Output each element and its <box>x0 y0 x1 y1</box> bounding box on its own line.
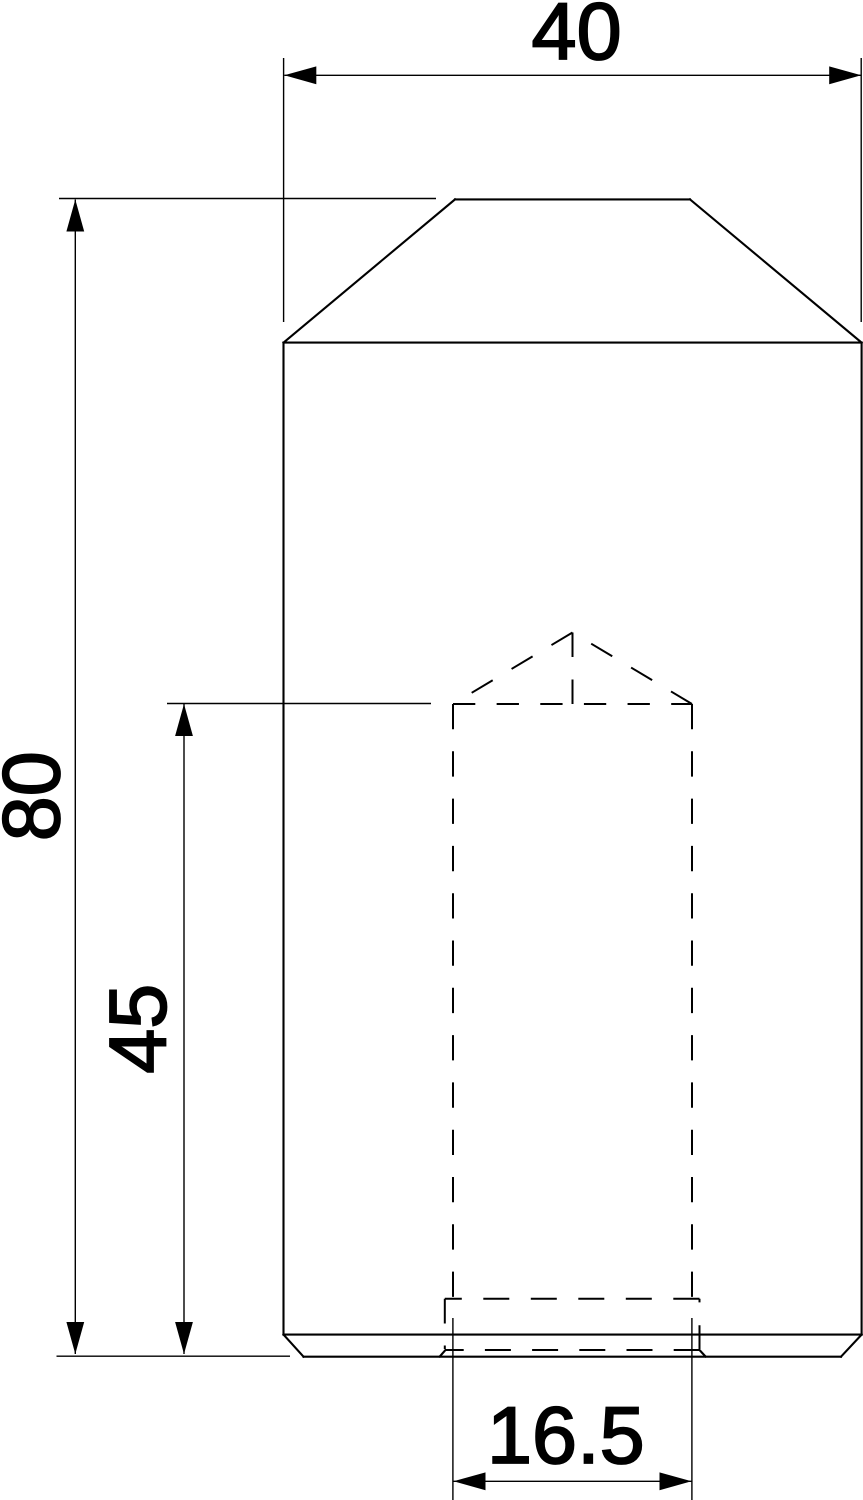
svg-text:80: 80 <box>0 751 77 841</box>
svg-text:45: 45 <box>93 984 183 1074</box>
svg-text:16.5: 16.5 <box>487 1391 645 1481</box>
svg-text:40: 40 <box>532 0 622 77</box>
